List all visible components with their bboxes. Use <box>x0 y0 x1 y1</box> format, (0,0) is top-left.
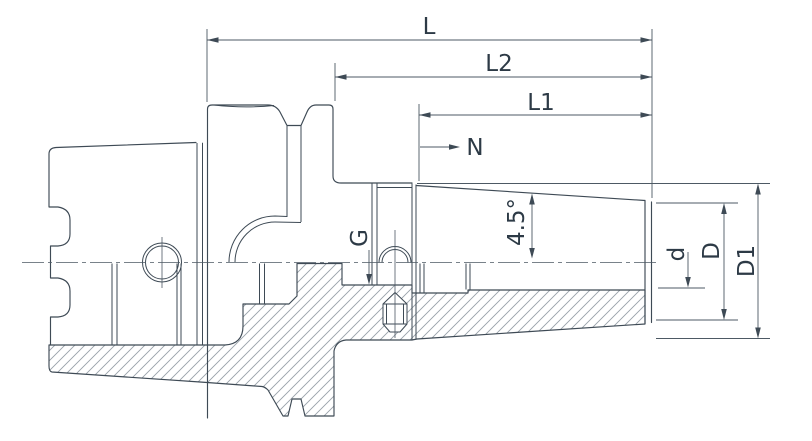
shank-outline <box>49 143 196 346</box>
nose-taper-top <box>416 186 645 201</box>
label-taper-angle: 4.5° <box>504 198 530 246</box>
label-body-diameter: D1 <box>734 245 760 277</box>
flange-slot-arcs <box>229 216 301 262</box>
label-overall-length: L <box>423 14 436 40</box>
toolholder-drawing: L L2 L1 N G 4.5° d D D1 <box>0 0 812 441</box>
flange-groove-walls <box>287 126 301 222</box>
label-g-thread: G <box>347 229 373 247</box>
shank-flange-edges <box>197 143 203 345</box>
technical-drawing-page: L L2 L1 N G 4.5° d D D1 <box>0 0 812 441</box>
label-nose-diameter: D <box>699 242 725 260</box>
label-n: N <box>466 135 483 161</box>
dimension-labels: L L2 L1 N G 4.5° d D D1 <box>347 14 760 277</box>
label-l2: L2 <box>485 51 512 77</box>
label-bore-diameter: d <box>664 247 690 262</box>
section-hatch-area <box>49 264 645 417</box>
label-l1: L1 <box>527 90 554 116</box>
section-view <box>49 264 645 417</box>
